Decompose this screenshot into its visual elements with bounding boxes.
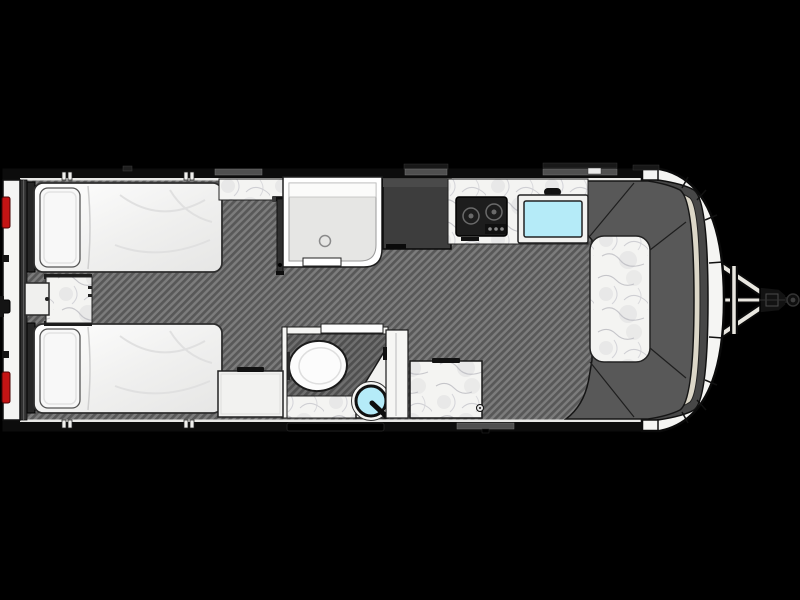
burner-right-center <box>492 210 497 215</box>
white-cabinet <box>218 371 283 417</box>
nightstand-marble-top <box>46 277 92 323</box>
bathroom-sliding-door-top <box>321 324 383 333</box>
entry-latch <box>482 429 489 433</box>
hitch-ball-center <box>791 298 796 303</box>
window-top-2 <box>405 169 447 175</box>
door-stop-pin <box>479 407 481 409</box>
shower-bench <box>289 183 376 197</box>
bumper-latch-bottom <box>2 351 9 358</box>
bathroom-counter <box>286 396 358 418</box>
entry-step <box>287 423 384 431</box>
nightstand-detail-2 <box>88 294 92 297</box>
kitchen-sink-basin <box>524 201 582 237</box>
tail-light-bottom <box>2 372 10 403</box>
kitchenette <box>448 179 588 244</box>
kitchen-drawer-handle <box>461 237 479 241</box>
cooktop-knob-2 <box>494 227 498 231</box>
awning-rail-2 <box>543 163 617 168</box>
pocket-door-pull <box>278 263 282 267</box>
bathroom <box>282 324 408 421</box>
wardrobe-top-face <box>383 179 451 187</box>
bathroom-pocket-door <box>386 330 408 418</box>
cooktop-knob-3 <box>500 227 504 231</box>
pocket-door-track <box>277 199 283 273</box>
window-top-3 <box>543 169 617 175</box>
rear-wall-highlight <box>23 180 24 420</box>
awning-rail-3 <box>633 165 659 170</box>
burner-left-center <box>469 214 474 219</box>
front-nose <box>566 169 724 431</box>
awning-rail-1 <box>404 164 448 169</box>
wardrobe-cabinet <box>383 179 451 249</box>
roof-vent-mark <box>123 166 132 171</box>
entry-door-bottom <box>457 423 514 429</box>
shower-door-handle <box>303 258 341 266</box>
dinette-table <box>590 236 650 362</box>
bumper-latch-top <box>2 255 9 262</box>
trailer-floor-plan <box>0 0 800 600</box>
pocket-door-cap-bottom <box>276 271 284 275</box>
shower <box>283 177 382 267</box>
marble-cabinet <box>410 361 482 418</box>
wardrobe <box>383 179 451 249</box>
bottom-wall-inner-line <box>20 420 652 423</box>
window-top-latch <box>588 168 601 174</box>
nightstand-detail-1 <box>88 286 92 289</box>
cooktop-knob-1 <box>488 227 492 231</box>
white-cabinet-handle <box>237 367 264 372</box>
bed-top <box>27 182 222 272</box>
bed-bottom <box>27 323 222 413</box>
nightstand-knob <box>45 297 49 301</box>
marble-cabinet-handle <box>432 358 460 363</box>
rear-jack-bar <box>0 296 4 317</box>
wardrobe-handle <box>386 244 406 249</box>
bed-top-pillow <box>40 188 80 267</box>
bathroom-door-handle <box>383 347 387 360</box>
tail-light-top <box>2 197 10 228</box>
window-top-1 <box>215 169 262 175</box>
floor-plan-stage <box>0 0 800 600</box>
bed-bottom-pillow <box>40 329 80 408</box>
